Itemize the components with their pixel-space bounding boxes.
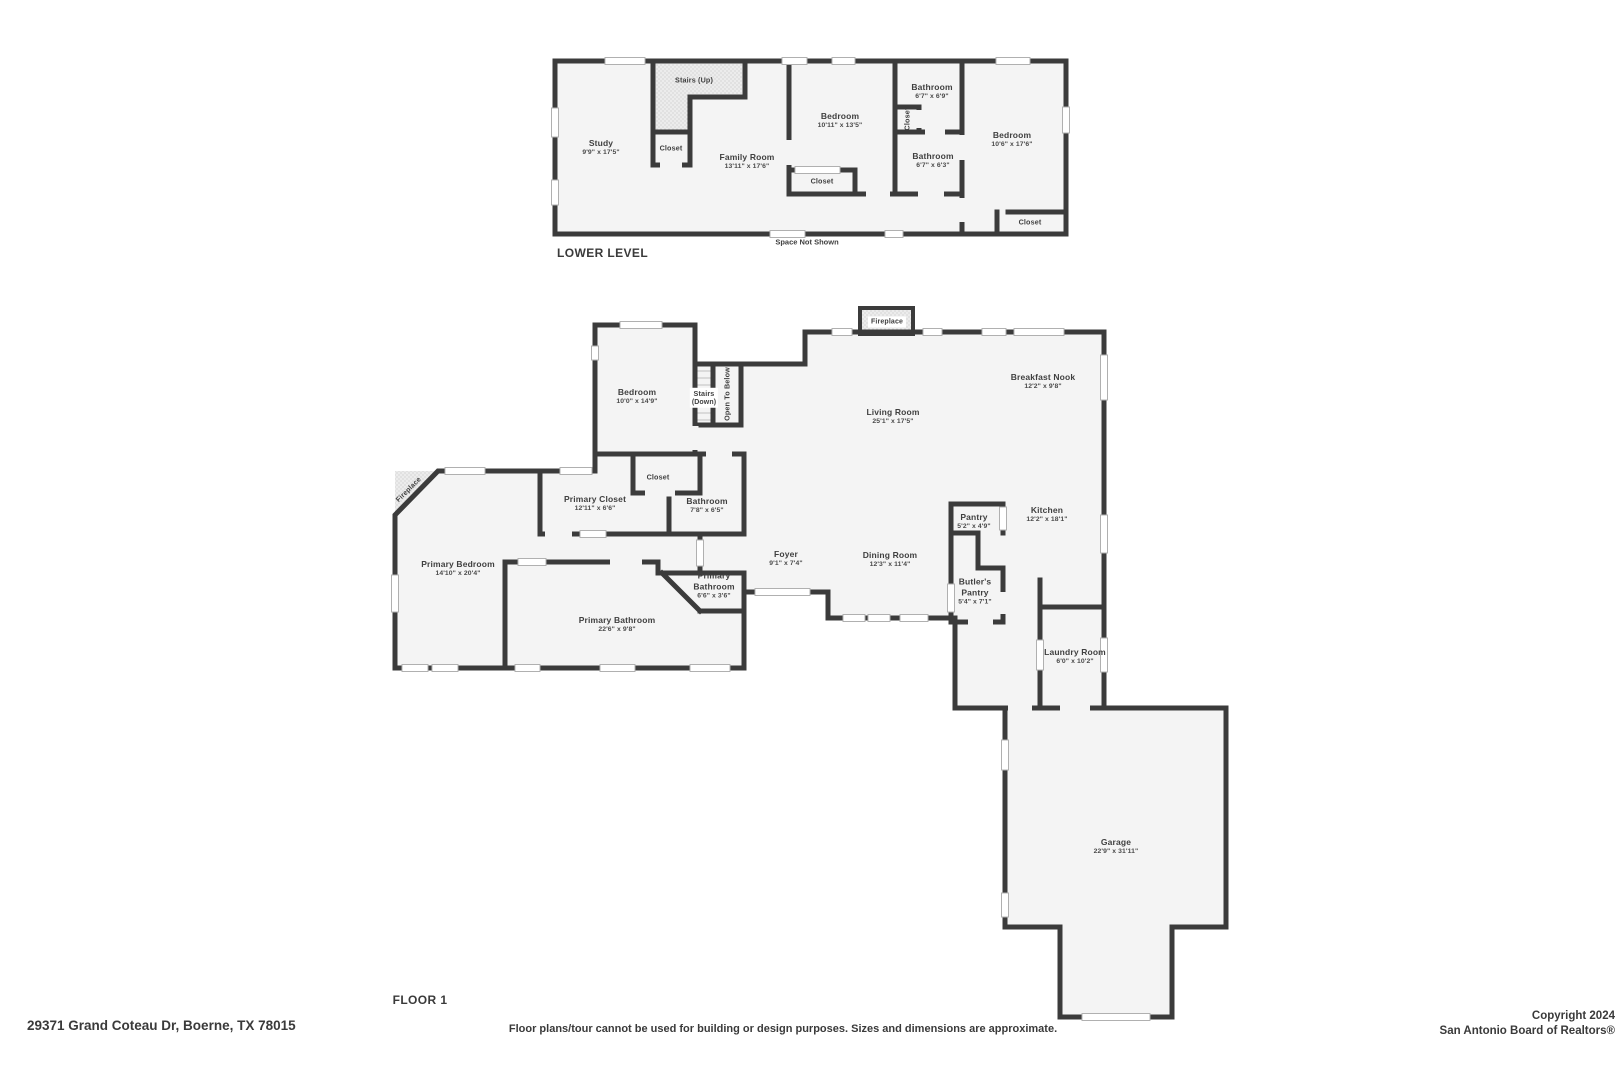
room-label-bedroom-f1: Bedroom 10'0" x 14'9" — [616, 387, 657, 407]
room-label-stairs-closet: Closet — [660, 143, 683, 152]
floor-plan-drawing — [0, 0, 1620, 1080]
property-address: 29371 Grand Coteau Dr, Boerne, TX 78015 — [27, 1018, 296, 1033]
room-label-bathroom-f1: Bathroom 7'8" x 6'5" — [686, 496, 727, 516]
room-label-stairs-up: Stairs (Up) — [675, 75, 713, 84]
room-label-laundry-room: Laundry Room 6'0" x 10'2" — [1044, 647, 1106, 667]
room-label-bedroom-right: Bedroom 10'6" x 17'6" — [991, 130, 1032, 150]
copyright-text: Copyright 2024 San Antonio Board of Real… — [1440, 1009, 1615, 1038]
room-label-dining-room: Dining Room 12'3" x 11'4" — [863, 550, 918, 570]
room-label-fireplace-living: Fireplace — [868, 316, 906, 327]
copyright-line1: Copyright 2024 — [1440, 1009, 1615, 1024]
room-label-hall-closet-f1: Closet — [647, 472, 670, 481]
room-label-primary-bathroom-small: Primary Bathroom 6'6" x 3'6" — [691, 571, 737, 602]
room-label-living-room: Living Room 25'1" x 17'5" — [866, 407, 919, 427]
room-label-stairs-down: Stairs (Down) — [690, 388, 718, 408]
room-label-primary-bedroom: Primary Bedroom 14'10" x 20'4" — [421, 559, 495, 579]
room-label-bedroom-middle: Bedroom 10'11" x 13'5" — [818, 111, 863, 131]
room-label-primary-bathroom: Primary Bathroom 22'6" x 9'8" — [579, 615, 656, 635]
floor-plan-page: Study 9'9" x 17'5" Stairs (Up) Closet Fa… — [0, 0, 1620, 1080]
room-label-pantry: Pantry 5'2" x 4'9" — [957, 512, 990, 532]
room-label-butlers-pantry: Butler's Pantry 5'4" x 7'1" — [952, 577, 998, 608]
floor-1-title: FLOOR 1 — [393, 993, 448, 1007]
room-label-garage: Garage 22'9" x 31'11" — [1094, 837, 1139, 857]
space-not-shown-note: Space Not Shown — [775, 238, 838, 247]
room-label-bathroom-upper: Bathroom 6'7" x 6'9" — [911, 82, 952, 102]
room-label-bedroom-right-closet: Closet — [1019, 217, 1042, 226]
room-label-bedroom-closet: Closet — [811, 176, 834, 185]
room-label-family-room: Family Room 13'11" x 17'6" — [719, 152, 774, 172]
room-label-open-to-below: Open To Below — [722, 367, 731, 421]
room-label-primary-closet: Primary Closet 12'11" x 6'6" — [564, 494, 626, 514]
room-label-foyer: Foyer 9'1" x 7'4" — [769, 549, 802, 569]
room-label-kitchen: Kitchen 12'2" x 18'1" — [1026, 505, 1067, 525]
room-label-breakfast-nook: Breakfast Nook 12'2" x 9'8" — [1011, 372, 1075, 392]
disclaimer-text: Floor plans/tour cannot be used for buil… — [509, 1023, 1057, 1035]
lower-level-title: LOWER LEVEL — [557, 246, 648, 260]
room-label-hall-closet-lower: Closet — [902, 108, 911, 131]
room-label-bathroom-lower: Bathroom 6'7" x 6'3" — [912, 151, 953, 171]
copyright-line2: San Antonio Board of Realtors® — [1440, 1024, 1615, 1039]
room-label-study: Study 9'9" x 17'5" — [582, 138, 619, 158]
